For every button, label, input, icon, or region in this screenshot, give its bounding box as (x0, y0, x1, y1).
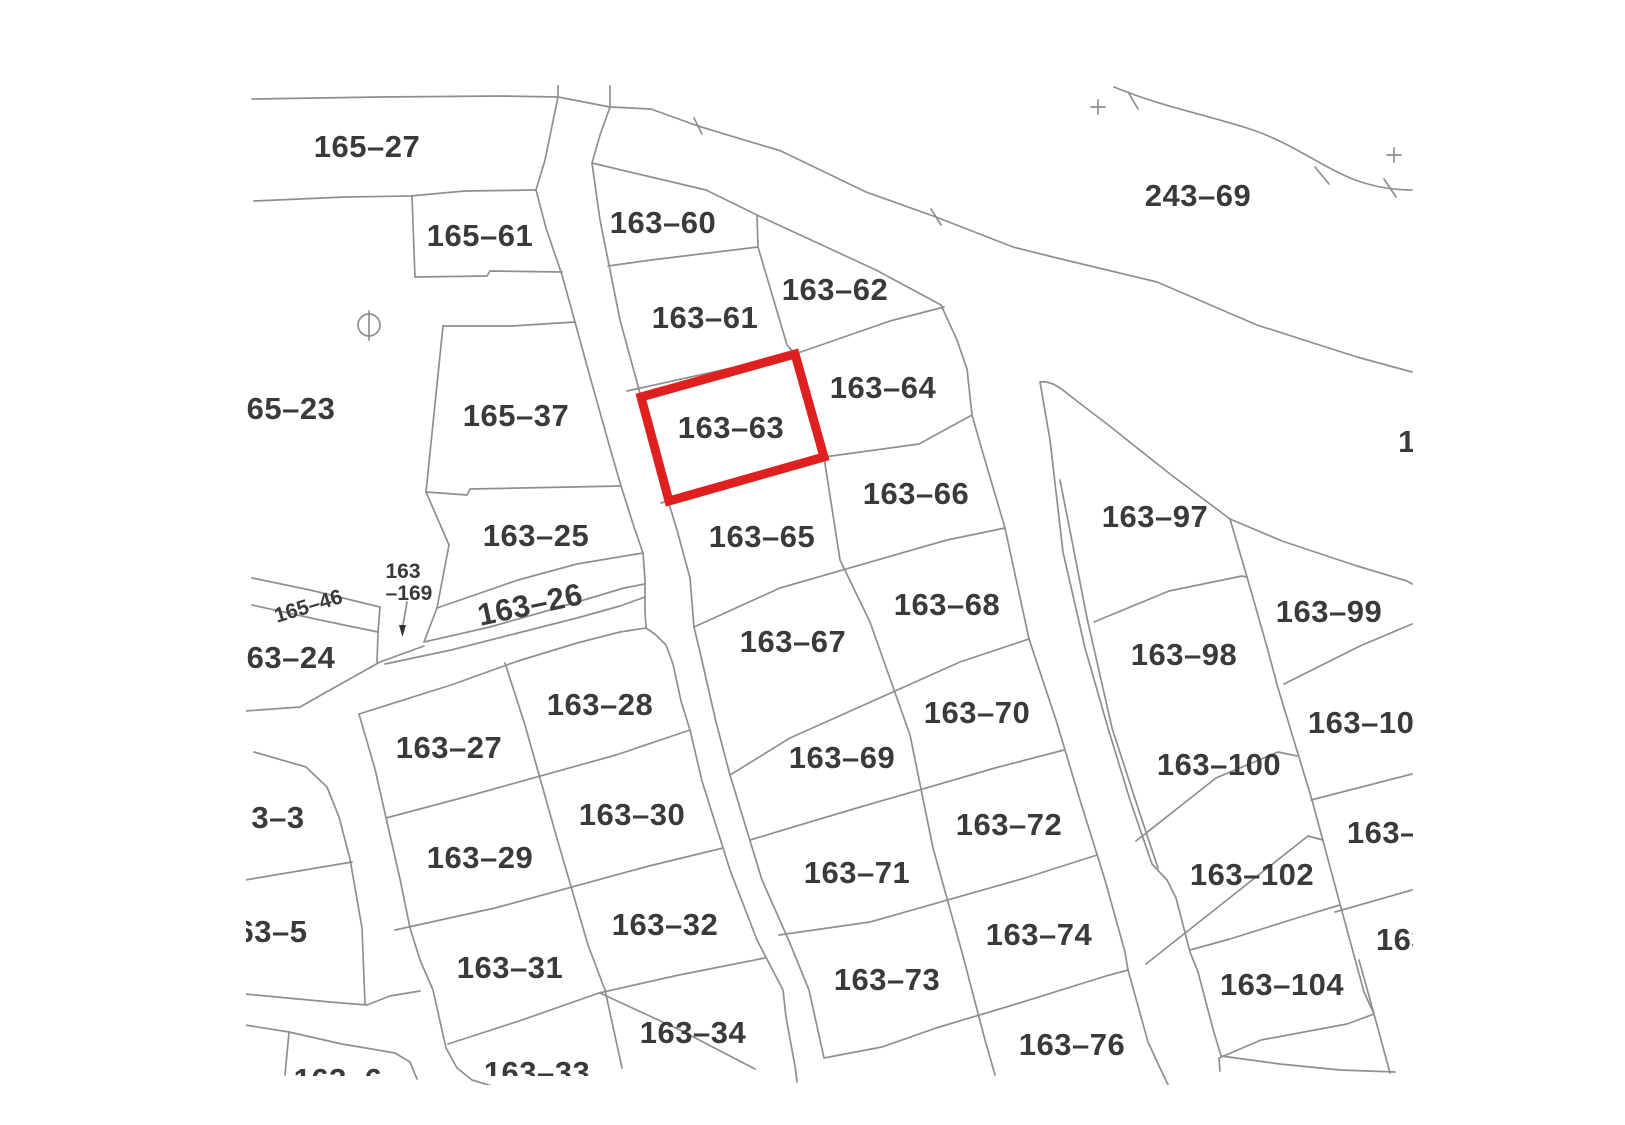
svg-text:65–23: 65–23 (247, 391, 336, 426)
svg-text:163–29: 163–29 (427, 840, 533, 875)
svg-text:163–76: 163–76 (1019, 1027, 1125, 1062)
svg-text:165–37: 165–37 (463, 398, 569, 433)
svg-text:165–61: 165–61 (427, 218, 533, 253)
svg-text:163–67: 163–67 (740, 624, 846, 659)
svg-text:163–97: 163–97 (1102, 499, 1208, 534)
svg-text:163–68: 163–68 (894, 587, 1000, 622)
svg-text:243–69: 243–69 (1145, 178, 1251, 213)
svg-text:163–69: 163–69 (789, 740, 895, 775)
svg-text:–169: –169 (386, 582, 433, 605)
svg-text:163–73: 163–73 (834, 962, 940, 997)
svg-text:163–66: 163–66 (863, 476, 969, 511)
svg-text:163–98: 163–98 (1131, 637, 1237, 672)
svg-text:163–71: 163–71 (804, 855, 910, 890)
svg-text:163–34: 163–34 (640, 1015, 747, 1050)
svg-text:163–27: 163–27 (396, 730, 502, 765)
svg-text:163–60: 163–60 (610, 205, 716, 240)
svg-text:163–64: 163–64 (830, 370, 937, 405)
svg-text:163–72: 163–72 (956, 807, 1062, 842)
svg-text:163–62: 163–62 (782, 272, 888, 307)
svg-text:163–70: 163–70 (924, 695, 1030, 730)
svg-text:163–100: 163–100 (1157, 747, 1281, 782)
svg-text:63–24: 63–24 (247, 640, 336, 675)
svg-text:163–63: 163–63 (678, 410, 784, 445)
svg-text:165–27: 165–27 (314, 129, 420, 164)
svg-text:163–32: 163–32 (612, 907, 718, 942)
svg-text:3–3: 3–3 (251, 800, 304, 835)
svg-text:163–102: 163–102 (1190, 857, 1314, 892)
svg-text:163–99: 163–99 (1276, 594, 1382, 629)
svg-text:163–104: 163–104 (1220, 967, 1344, 1002)
svg-text:63–5: 63–5 (237, 914, 308, 949)
svg-text:163–28: 163–28 (547, 687, 653, 722)
svg-text:163: 163 (385, 560, 420, 583)
svg-text:163–30: 163–30 (579, 797, 685, 832)
svg-text:163–61: 163–61 (652, 300, 758, 335)
svg-text:163–65: 163–65 (709, 519, 815, 554)
svg-text:163–31: 163–31 (457, 950, 563, 985)
svg-text:163–25: 163–25 (483, 518, 589, 553)
svg-text:163–74: 163–74 (986, 917, 1093, 952)
